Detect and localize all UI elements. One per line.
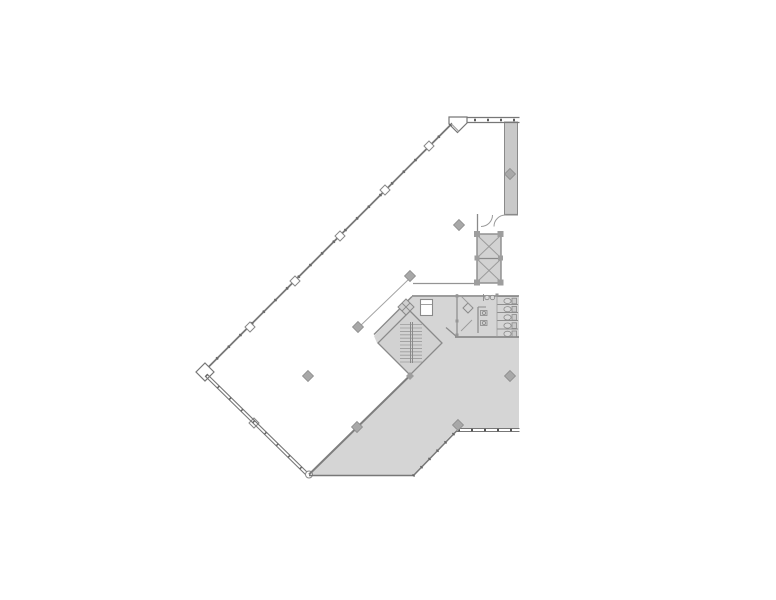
elevator-post [474, 231, 480, 237]
elevator-post [474, 280, 480, 286]
toilet-fixture [512, 306, 517, 312]
north-corridor-wall [505, 122, 518, 215]
wall-post [496, 294, 499, 297]
toilet-bowl [504, 331, 511, 336]
elevator-post [498, 231, 504, 237]
toilet-bowl [504, 315, 511, 320]
elevator-post [475, 256, 480, 261]
sw-window-wall [205, 376, 307, 476]
wall-post [456, 320, 459, 323]
door-swing-arc [481, 215, 493, 227]
column-marker [303, 371, 314, 382]
toilet-fixture [512, 298, 517, 304]
toilet-bowl [504, 323, 511, 328]
floor-plan-drawing [0, 0, 776, 600]
column-marker [353, 322, 364, 333]
elevator-post [498, 256, 503, 261]
wall-post [456, 295, 459, 298]
sink-fixture [485, 295, 489, 299]
toilet-fixture [512, 323, 517, 329]
column-marker [405, 271, 416, 282]
wall-post [456, 334, 459, 337]
toilet-fixture [512, 315, 517, 321]
duct-shaft [421, 300, 433, 316]
wall-notch [245, 322, 255, 332]
toilet-bowl [504, 298, 511, 303]
elevator-post [498, 280, 504, 286]
column-marker [454, 220, 465, 231]
toilet-bowl [504, 307, 511, 312]
sw-window-wall [207, 374, 309, 474]
toilet-fixture [512, 331, 517, 337]
door-swing-arc [494, 215, 506, 227]
floor-plan-canvas [0, 0, 776, 600]
sink-fixture [490, 295, 494, 299]
